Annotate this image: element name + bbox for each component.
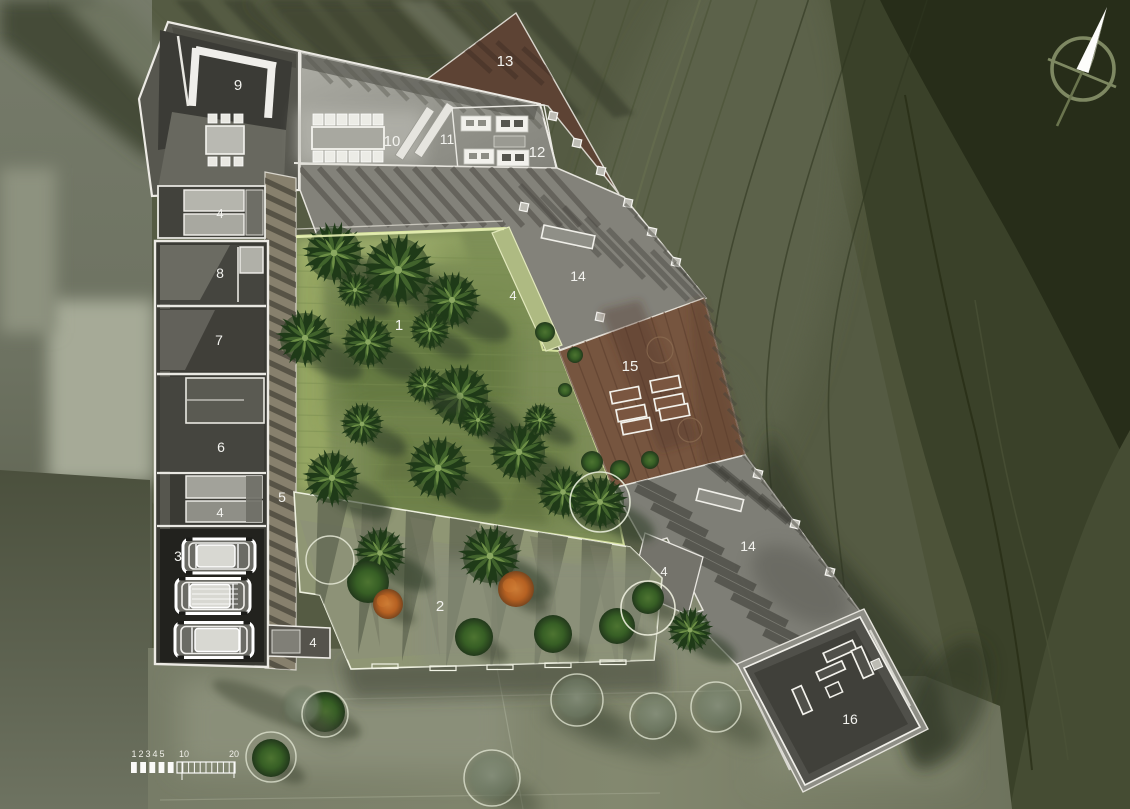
svg-text:1: 1	[131, 749, 136, 759]
svg-text:5: 5	[159, 749, 164, 759]
svg-text:4: 4	[152, 749, 157, 759]
svg-text:20: 20	[229, 749, 239, 759]
svg-text:4: 4	[309, 635, 316, 650]
svg-text:10: 10	[384, 133, 401, 150]
svg-text:16: 16	[842, 711, 858, 727]
svg-text:3: 3	[174, 548, 182, 564]
svg-text:4: 4	[216, 206, 223, 221]
svg-text:13: 13	[497, 53, 514, 70]
svg-text:11: 11	[440, 131, 455, 147]
svg-text:7: 7	[215, 332, 223, 348]
svg-text:15: 15	[622, 358, 639, 375]
svg-text:2: 2	[436, 598, 444, 615]
svg-text:1: 1	[395, 317, 403, 334]
svg-text:12: 12	[529, 144, 546, 161]
svg-text:4: 4	[216, 505, 223, 520]
svg-text:9: 9	[234, 77, 242, 94]
svg-text:14: 14	[570, 268, 586, 284]
svg-text:14: 14	[740, 538, 756, 554]
svg-text:10: 10	[179, 749, 189, 759]
svg-text:8: 8	[216, 265, 224, 281]
svg-text:4: 4	[509, 288, 516, 303]
svg-text:6: 6	[217, 439, 225, 455]
svg-text:5: 5	[278, 489, 286, 505]
svg-text:3: 3	[145, 749, 150, 759]
svg-text:2: 2	[138, 749, 143, 759]
